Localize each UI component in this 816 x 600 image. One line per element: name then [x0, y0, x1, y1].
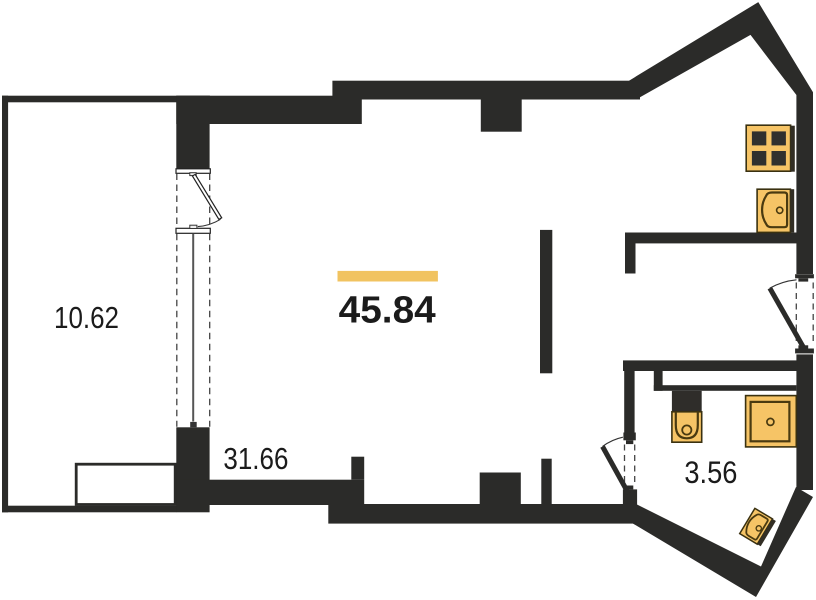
- svg-text:45.84: 45.84: [339, 290, 436, 332]
- svg-text:10.62: 10.62: [54, 300, 119, 335]
- svg-text:31.66: 31.66: [223, 441, 288, 476]
- svg-text:3.56: 3.56: [684, 454, 737, 490]
